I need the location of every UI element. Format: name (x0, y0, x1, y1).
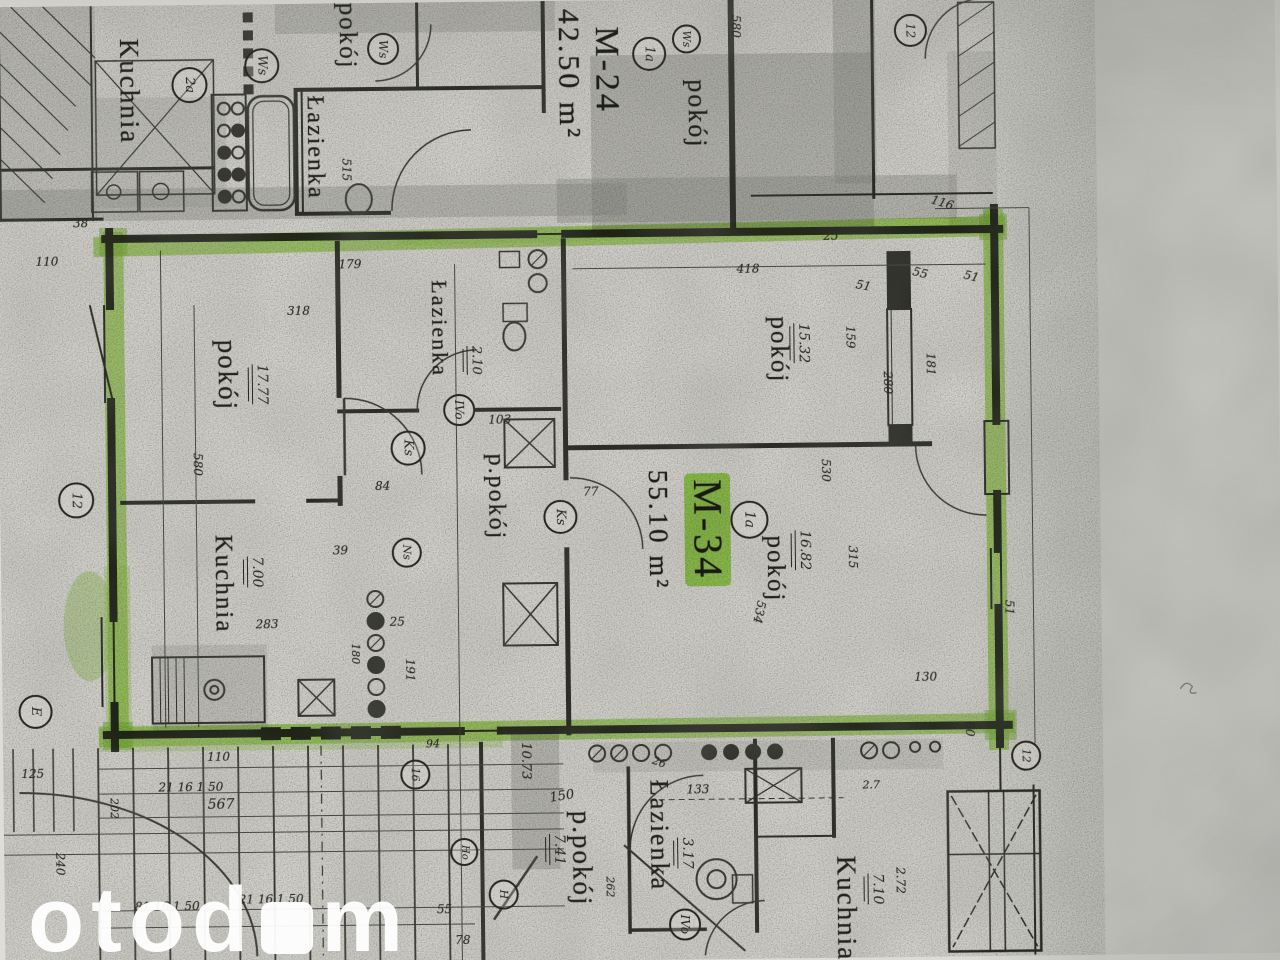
dimension-262-31: 262 (604, 876, 615, 897)
dimension-84-20: 84 (375, 480, 390, 492)
axis-marker-12-13: 12 (1011, 740, 1041, 770)
room-label-ppokoj-m34: p.pokój (484, 453, 509, 540)
dimension-180-26: 180 (350, 643, 361, 664)
axis-marker-label: 1a (742, 511, 756, 528)
unit-area-m34: 55.10 m² (644, 470, 672, 591)
dimension-2-72-30: 2.72 (894, 867, 906, 894)
dimension-77-21: 77 (583, 485, 598, 497)
dimension-78-45: 78 (455, 934, 470, 946)
dimension-21-16-1-50-40: 21 16 1 50 (158, 781, 223, 794)
axis-marker-label: 16 (410, 768, 421, 782)
room-label-ppokoj-south: p.pokój (568, 811, 596, 907)
axis-marker-1a-6: 1a (730, 501, 768, 539)
axis-marker-label: IVo (453, 400, 465, 420)
dimension-318-10: 318 (287, 305, 310, 317)
axis-marker-label: H (498, 890, 509, 900)
axis-marker-ivo-8: IVo (443, 394, 475, 426)
dimension-530-15: 530 (820, 459, 832, 482)
plan-tilt-wrapper: KuchniaŁazienkaP.pokójM-2442.50 m²pokójp… (0, 0, 1280, 960)
room-label-kuchnia-m34: Kuchnia (211, 535, 237, 634)
dimension-2-7-32: 2.7 (862, 779, 880, 790)
axis-marker-ks-7: Ks (390, 430, 425, 465)
room-area-7-00: 7.00 (247, 556, 264, 587)
axis-marker-label: Ks (554, 509, 567, 526)
room-label-lazienka-m24: Łazienka (303, 96, 328, 200)
room-label-pokoj-m34-west: pokój (213, 340, 241, 412)
otodom-watermark: otod m (28, 868, 410, 960)
axis-marker-ws-4: Ws (672, 24, 701, 53)
axis-marker-ho-15: Ho (450, 838, 478, 866)
room-area-2-10: 2.10 (466, 346, 482, 375)
watermark-text-suffix: m (321, 868, 410, 960)
room-area-15-32: 15.32 (793, 323, 810, 363)
axis-marker-1a-3: 1a (632, 37, 666, 71)
dimension-283-24: 283 (256, 618, 279, 630)
unit-area-m24: 42.50 m² (553, 9, 584, 141)
room-label-kuchnia-m24: Kuchnia (115, 39, 143, 145)
axis-marker-label: E (29, 707, 42, 717)
dimension-55-44: 55 (437, 903, 452, 915)
axis-marker-ws-1: Ws (244, 48, 279, 83)
axis-marker-label: 12 (1021, 749, 1032, 763)
dimension-110-38: 110 (207, 751, 230, 763)
room-label-lazienka-m34: Łazienka (428, 280, 451, 377)
dimension-39-22: 39 (333, 544, 348, 556)
watermark-square-glyph (261, 902, 313, 954)
dimension-51-11: 51 (855, 278, 872, 293)
dimension-51-7: 51 (962, 269, 980, 284)
axis-marker-label: 1a (643, 46, 656, 62)
dimension-179-9: 179 (338, 258, 361, 270)
dimension-315-16: 315 (847, 546, 859, 569)
axis-marker-ivo-17: IVo (669, 908, 701, 940)
dimension-191-25: 191 (404, 659, 416, 682)
dimension-567-41: 567 (208, 798, 235, 812)
axis-marker-ks-9: Ks (543, 500, 577, 534)
axis-marker-label: Ns (401, 545, 412, 560)
dimension-133-33: 133 (686, 783, 709, 795)
room-area-16-82: 16.82 (795, 530, 812, 570)
axis-marker-label: Ws (377, 40, 389, 59)
dimension-515-0: 515 (340, 158, 352, 181)
room-label-kuchnia-south: Kuchnia (832, 856, 860, 960)
dimension-26-34: 26 (651, 755, 668, 770)
dimension-116-4: 116 (930, 193, 955, 211)
dimension-580-3: 580 (730, 15, 742, 38)
watermark-text-prefix: otod (28, 868, 255, 960)
dimension-181-13: 181 (925, 353, 937, 376)
axis-marker-2a-0: 2a (171, 67, 207, 103)
axis-marker-h-16: H (489, 879, 519, 909)
axis-marker-label: 2a (183, 77, 196, 93)
room-area-7-41: 7.41 (549, 834, 566, 865)
axis-marker-label: IVo (679, 915, 691, 935)
axis-marker-label: Ws (681, 30, 692, 47)
axis-marker-label: Ks (402, 440, 415, 457)
unit-label-m34: M-34 (684, 473, 731, 586)
dimension-51-28: 51 (1003, 600, 1015, 615)
dimension-202-47: 202 (109, 798, 120, 819)
dimension-38-1: 38 (73, 217, 88, 229)
dimension-103-19: 103 (488, 413, 511, 425)
axis-marker-label: 12 (904, 23, 916, 38)
room-area-3-17: 3.17 (677, 837, 694, 868)
dimension-580-18: 580 (192, 453, 204, 476)
dimension-60-27: 60 (964, 721, 976, 736)
dimension-10-73-35: 10.73 (519, 742, 532, 779)
axis-marker-12-5: 12 (894, 14, 927, 47)
dimension-534-17: 534 (751, 600, 767, 625)
axis-marker-ws-2: Ws (367, 33, 399, 65)
room-label-pokoj-m34-ne: pokój (766, 316, 792, 383)
dimension-159-12: 159 (844, 326, 856, 349)
dimension-55-6: 55 (911, 265, 929, 280)
dimension-25-23: 25 (390, 616, 405, 628)
room-area-7-10: 7.10 (867, 873, 884, 904)
dimension-150-36: 150 (549, 788, 576, 805)
dimension-280-14: 280 (882, 371, 894, 394)
unit-label-m24: M-24 (589, 26, 624, 114)
dimension-125-39: 125 (21, 768, 44, 780)
axis-marker-e-12: E (18, 695, 52, 729)
axis-marker-label: 12 (70, 492, 83, 509)
axis-marker-16-14: 16 (400, 759, 430, 789)
plan-labels: KuchniaŁazienkaP.pokójM-2442.50 m²pokójp… (0, 0, 1280, 960)
dimension-418-8: 418 (737, 263, 760, 275)
room-area-17-77: 17.77 (252, 364, 269, 404)
dimension-130-29: 130 (914, 671, 937, 683)
floorplan-photo: KuchniaŁazienkaP.pokójM-2442.50 m²pokójp… (0, 0, 1280, 960)
dimension-110-2: 110 (35, 256, 58, 268)
axis-marker-ns-10: Ns (392, 537, 422, 567)
room-label-pokoj-m24: pokój (683, 79, 710, 149)
axis-marker-label: Ho (459, 845, 469, 860)
axis-marker-label: Ws (255, 56, 268, 76)
room-label-lazienka-south: Łazienka (645, 780, 672, 892)
room-label-pokoj-m34-se: pokój (763, 535, 789, 602)
room-label-ppokoj-m24: P.pokój (334, 0, 360, 70)
axis-marker-12-11: 12 (58, 482, 94, 518)
dimension-25-5: 25 (823, 230, 838, 242)
dimension-94-37: 94 (426, 738, 440, 749)
